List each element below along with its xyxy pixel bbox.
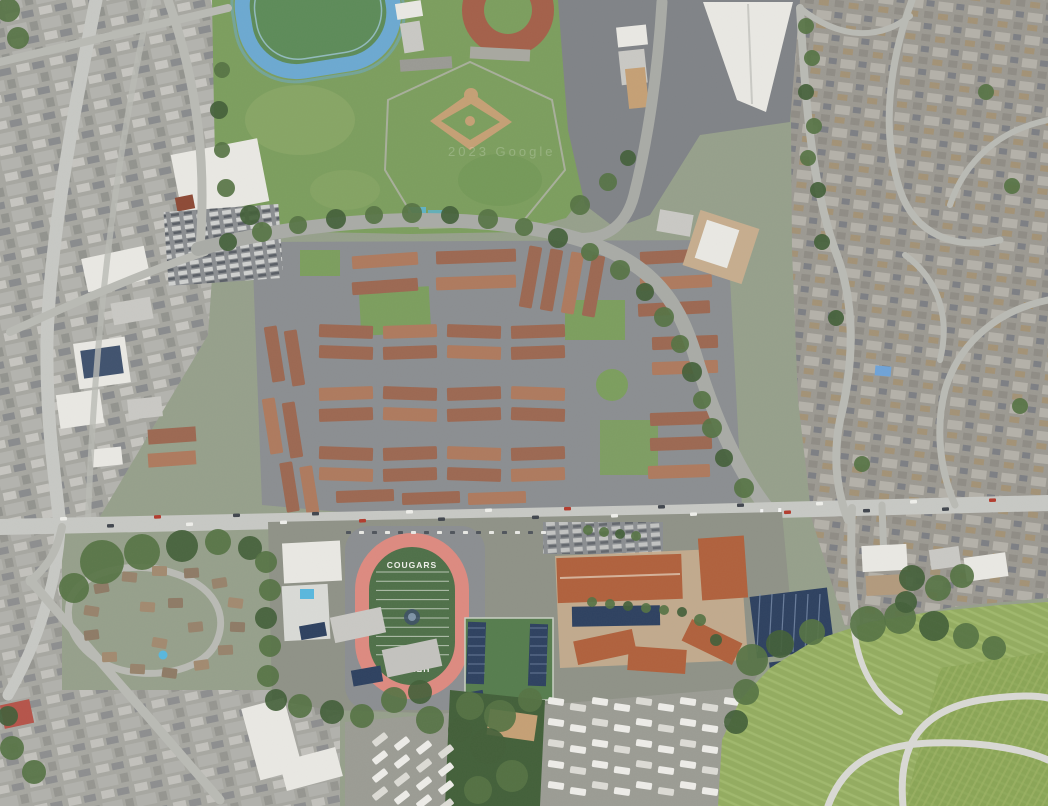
- image-grain: [0, 0, 1048, 806]
- satellite-canvas[interactable]: COUGARS HELMS: [0, 0, 1048, 806]
- satellite-image: COUGARS HELMS: [0, 0, 1048, 806]
